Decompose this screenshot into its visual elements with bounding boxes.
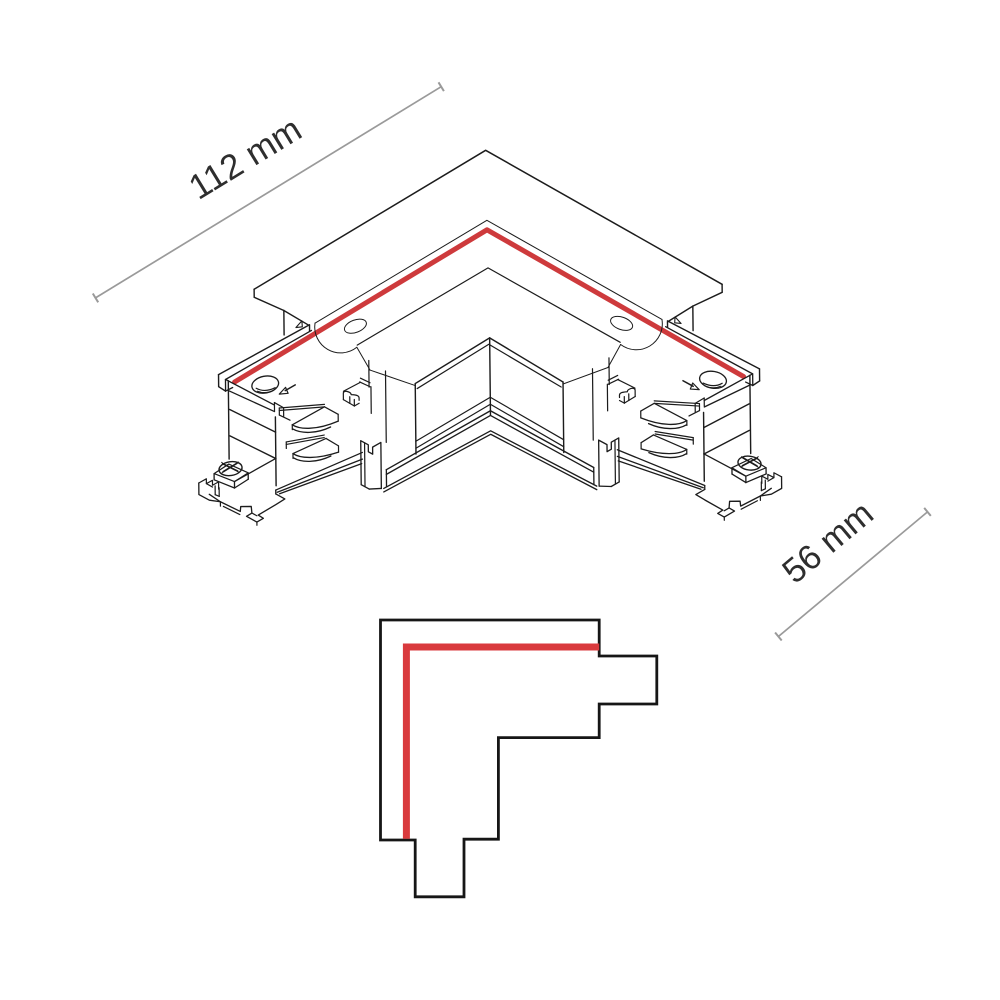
svg-text:112 mm: 112 mm bbox=[182, 110, 308, 208]
svg-text:56 mm: 56 mm bbox=[776, 494, 881, 591]
